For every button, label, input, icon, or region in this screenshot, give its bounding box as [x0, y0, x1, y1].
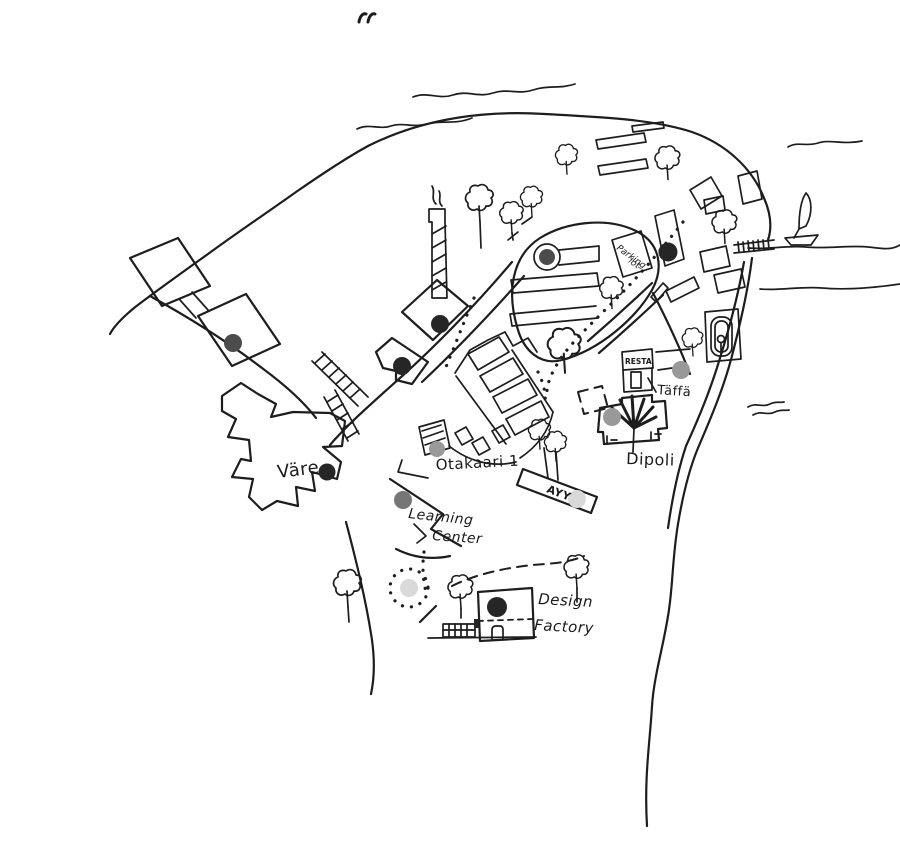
- label-learning-line2: Center: [432, 528, 484, 548]
- tree-icon: [544, 431, 566, 461]
- water-wave-icon: [748, 245, 900, 249]
- south-road: [346, 522, 374, 694]
- door: [631, 372, 641, 388]
- building-wing: [493, 379, 537, 413]
- ground-line: [428, 637, 536, 638]
- building-block: [130, 238, 210, 306]
- loop-building-bar: [510, 306, 598, 326]
- monument-structure: [705, 309, 741, 362]
- map-marker: [400, 579, 418, 597]
- map-marker: [431, 315, 449, 333]
- label-otakaari1: Otakaari 1: [435, 452, 519, 474]
- mid-buildings: [376, 280, 468, 384]
- tree-icon: [448, 575, 473, 609]
- water-wave-icon: [788, 141, 862, 147]
- label-resta: RESTA: [625, 357, 652, 366]
- dash-mark: [522, 217, 532, 224]
- water-wave-icon: [760, 284, 900, 289]
- map-marker: [224, 334, 242, 352]
- water-wave-icon: [753, 410, 789, 415]
- building-block: [690, 177, 722, 209]
- pier: [734, 239, 774, 253]
- loop-road-area: [510, 223, 659, 362]
- label-learning-line1: Learning: [408, 506, 475, 529]
- building-bar: [598, 159, 648, 175]
- map-marker: [429, 441, 445, 457]
- tree-icon: [712, 210, 737, 244]
- pen-tick-marks: [359, 14, 375, 22]
- tree-icon: [548, 328, 581, 373]
- label-design-line2: Factory: [534, 616, 595, 637]
- tree-icon: [682, 328, 703, 356]
- building-annex: [472, 437, 490, 455]
- tree-icon: [564, 555, 589, 589]
- west-road: [150, 296, 316, 418]
- crosswalk-stairs: [312, 352, 368, 441]
- building-wing: [468, 337, 509, 370]
- road-stub: [420, 606, 436, 622]
- tree-icon: [334, 570, 362, 607]
- tree-icon: [600, 277, 623, 309]
- dark-block: [474, 619, 479, 628]
- map-marker: [393, 357, 411, 375]
- label-dipoli: Dipoli: [626, 449, 675, 470]
- hand-drawn-campus-map: Väre Otakaari 1 Learning Center AYY Dipo…: [0, 0, 900, 842]
- map-marker: [539, 249, 555, 265]
- coast-left: [110, 146, 368, 334]
- sailboat-icon: [785, 193, 818, 245]
- map-marker: [319, 464, 336, 481]
- map-marker: [672, 361, 690, 379]
- loop-building-bar: [559, 246, 599, 265]
- tree-icon: [466, 185, 494, 222]
- building-block: [198, 294, 280, 366]
- building-wing: [480, 358, 523, 392]
- window-grid: [443, 624, 475, 637]
- water-wave-icon: [748, 402, 784, 407]
- map-markers: [224, 243, 690, 618]
- campus-sketch-canvas: Väre Otakaari 1 Learning Center AYY Dipo…: [0, 0, 900, 842]
- otakaari1-complex: [449, 332, 553, 464]
- building-block: [700, 246, 730, 272]
- dashed-courtyard: [578, 386, 608, 414]
- building-wing: [506, 401, 549, 435]
- tree-icon: [528, 419, 550, 449]
- center-road: [588, 283, 652, 341]
- map-marker: [603, 408, 621, 426]
- label-design-line1: Design: [538, 590, 594, 611]
- map-marker: [659, 243, 678, 262]
- design-factory-building: [428, 588, 536, 641]
- coast-right: [646, 258, 752, 826]
- tree-icon: [555, 144, 577, 174]
- building-annex: [455, 427, 473, 445]
- map-marker: [487, 597, 507, 617]
- tree-icon: [500, 202, 523, 234]
- learning-road-arc: [396, 549, 450, 558]
- map-labels: Väre Otakaari 1 Learning Center AYY Dipo…: [276, 243, 692, 637]
- tree-icon: [655, 146, 680, 180]
- building-bar: [596, 133, 646, 149]
- tree-icon: [520, 186, 542, 216]
- water-wave-icon: [413, 84, 575, 97]
- label-taffa: Täffä: [656, 383, 692, 400]
- parking-cluster-building: [666, 277, 699, 302]
- main-road: [330, 262, 512, 445]
